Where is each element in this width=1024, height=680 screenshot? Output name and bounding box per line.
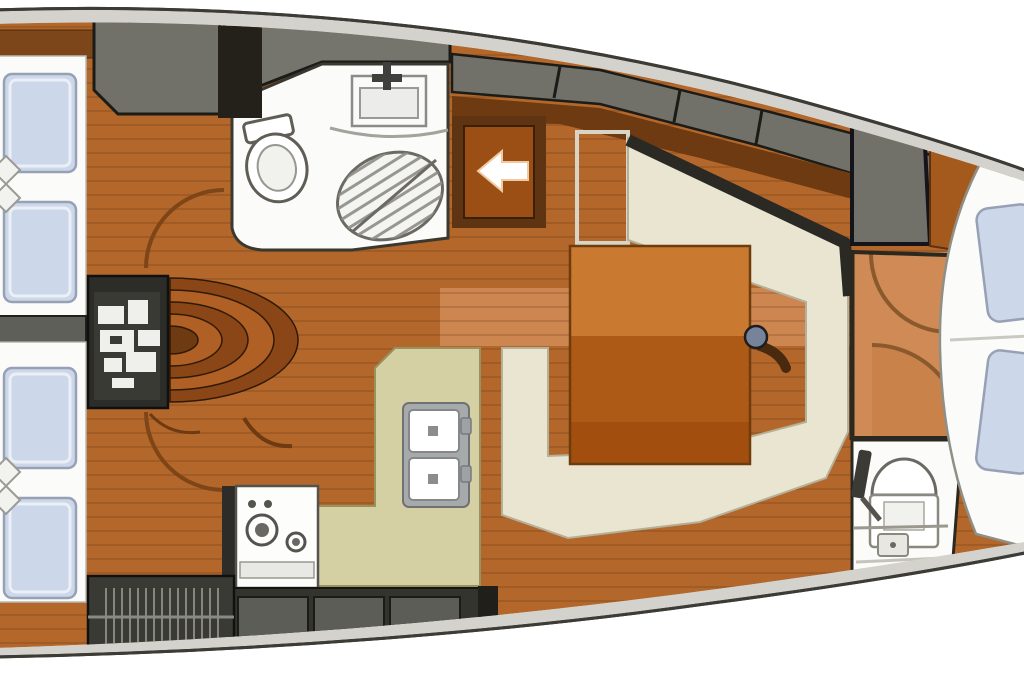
berth-cushion — [4, 74, 76, 172]
gimbal-stove — [222, 486, 318, 588]
engine-compartment — [88, 276, 168, 408]
berth-cushion — [4, 498, 76, 598]
sink-drain-icon — [428, 426, 438, 436]
stove-knob-icon — [248, 500, 256, 508]
faucet-icon — [372, 74, 402, 82]
companionway-entry — [452, 116, 546, 228]
floorplan-canvas — [0, 0, 1024, 680]
berth-cushion — [4, 368, 76, 468]
sink-drain-icon — [428, 474, 438, 484]
double-sink — [403, 403, 471, 507]
oven-door — [240, 562, 314, 578]
bulkhead-column — [218, 26, 262, 118]
sink-drain-icon — [890, 542, 896, 548]
stove-knob-icon — [264, 500, 272, 508]
deck-locker-a — [94, 16, 220, 114]
yacht-floorplan — [0, 0, 1024, 680]
salon-table — [570, 246, 750, 464]
head-with-shower — [232, 62, 456, 255]
cabin-divider-wall — [0, 316, 86, 342]
berth-cushion — [4, 202, 76, 302]
